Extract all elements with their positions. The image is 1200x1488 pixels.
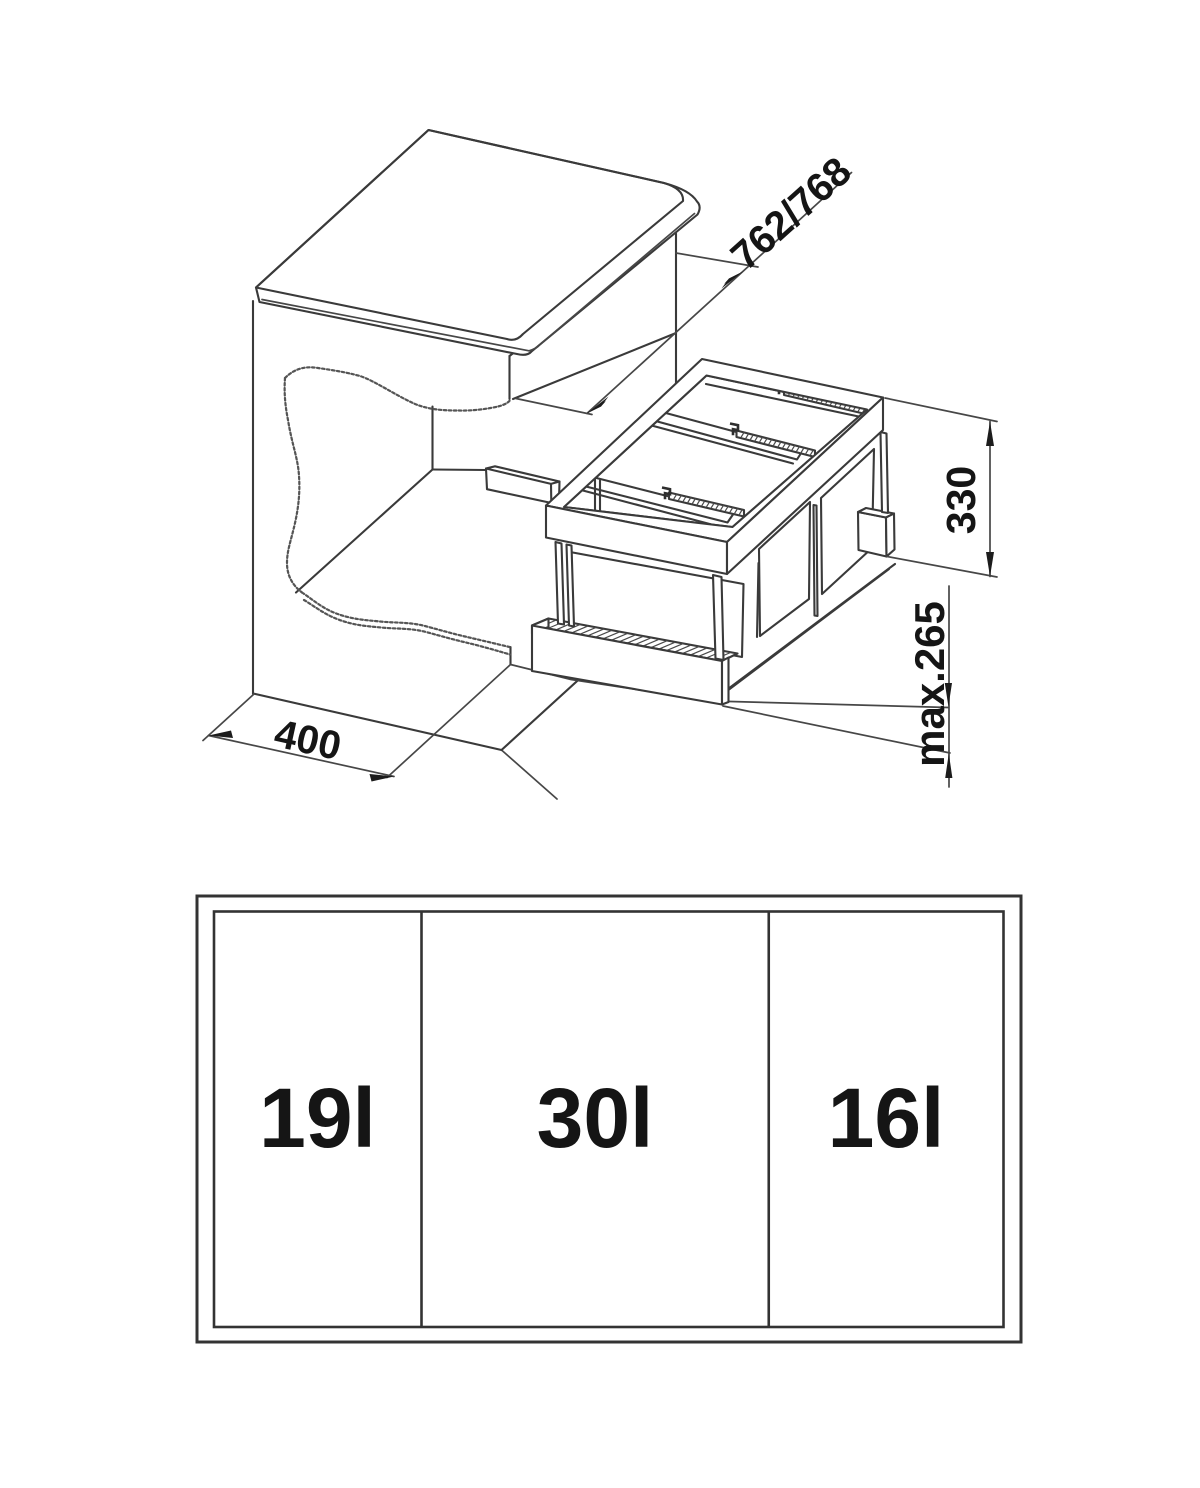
- svg-text:330: 330: [938, 466, 984, 534]
- svg-text:30l: 30l: [537, 1071, 654, 1165]
- svg-text:400: 400: [270, 712, 345, 769]
- svg-text:max.265: max.265: [906, 601, 953, 767]
- svg-text:19l: 19l: [259, 1071, 376, 1165]
- svg-text:16l: 16l: [828, 1071, 945, 1165]
- svg-text:762/768: 762/768: [723, 149, 860, 278]
